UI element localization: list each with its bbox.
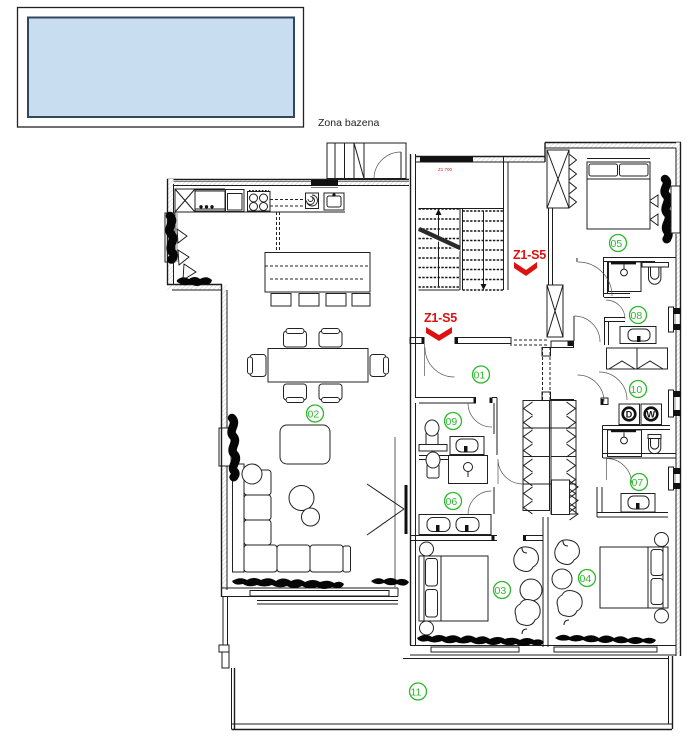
svg-text:11: 11 bbox=[411, 687, 422, 699]
svg-text:Zona bazena: Zona bazena bbox=[318, 117, 379, 129]
svg-text:04: 04 bbox=[580, 573, 592, 585]
svg-text:03: 03 bbox=[495, 585, 507, 597]
svg-text:Z1-S5: Z1-S5 bbox=[424, 311, 457, 325]
svg-text:D: D bbox=[626, 410, 633, 420]
svg-text:W: W bbox=[647, 410, 656, 420]
svg-text:Z1 700: Z1 700 bbox=[438, 167, 453, 172]
svg-text:Z1-S5: Z1-S5 bbox=[513, 248, 546, 262]
svg-text:07: 07 bbox=[632, 477, 644, 489]
svg-text:09: 09 bbox=[446, 416, 458, 428]
svg-text:02: 02 bbox=[308, 409, 320, 421]
svg-text:06: 06 bbox=[446, 496, 458, 508]
svg-text:05: 05 bbox=[611, 238, 623, 250]
svg-text:08: 08 bbox=[631, 310, 643, 322]
svg-text:10: 10 bbox=[631, 384, 643, 396]
svg-text:01: 01 bbox=[474, 370, 486, 382]
